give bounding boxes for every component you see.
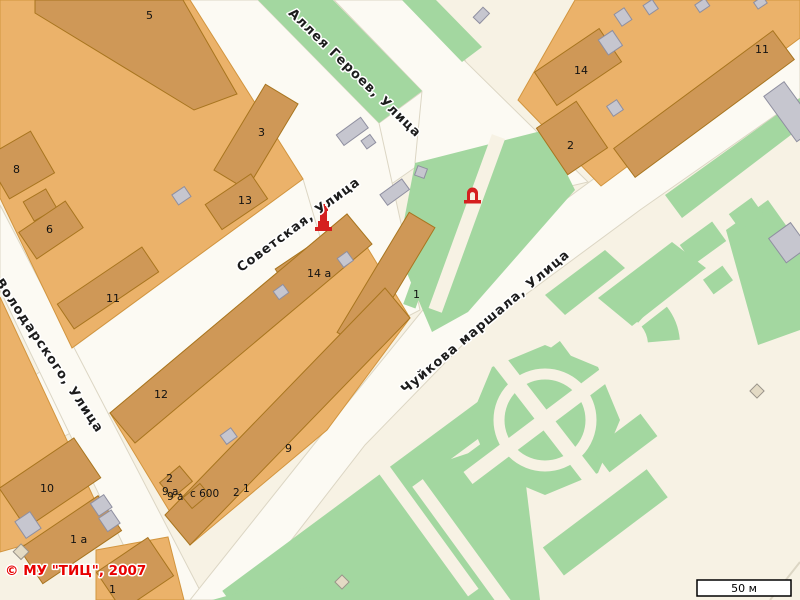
building-label: 12 bbox=[154, 388, 168, 401]
building-label: 6 bbox=[46, 223, 53, 236]
building-label: 1 bbox=[109, 583, 116, 596]
building-label: 2 bbox=[567, 139, 574, 152]
building-label: 9 bbox=[285, 442, 292, 455]
building-label: 14 а bbox=[307, 267, 331, 280]
building-label: 11 bbox=[106, 292, 120, 305]
building-label: 11 bbox=[755, 43, 769, 56]
map-canvas[interactable]: 5 3 13 8 6 11 14 а 1 12 9 2 10 1 а 1 14 … bbox=[0, 0, 800, 600]
building-label: 14 bbox=[574, 64, 588, 77]
label-fragment: 2 bbox=[233, 487, 240, 499]
building-label: 13 bbox=[238, 194, 252, 207]
building-label: 1 bbox=[413, 288, 420, 301]
building-label: 10 bbox=[40, 482, 54, 495]
building-label: 3 bbox=[258, 126, 265, 139]
label-fragment: 1 bbox=[243, 483, 250, 495]
scale-bar: 50 м bbox=[697, 580, 791, 596]
label-fragment: с 600 bbox=[190, 488, 219, 500]
copyright-label: © МУ "ТИЦ", 2007 bbox=[5, 563, 146, 579]
label-fragment: 9 а bbox=[167, 491, 183, 503]
building-label: 1 а bbox=[70, 533, 87, 546]
building-label: 8 bbox=[13, 163, 20, 176]
building-label: 2 bbox=[166, 472, 173, 485]
building-label: 5 bbox=[146, 9, 153, 22]
scale-bar-label: 50 м bbox=[731, 582, 757, 595]
